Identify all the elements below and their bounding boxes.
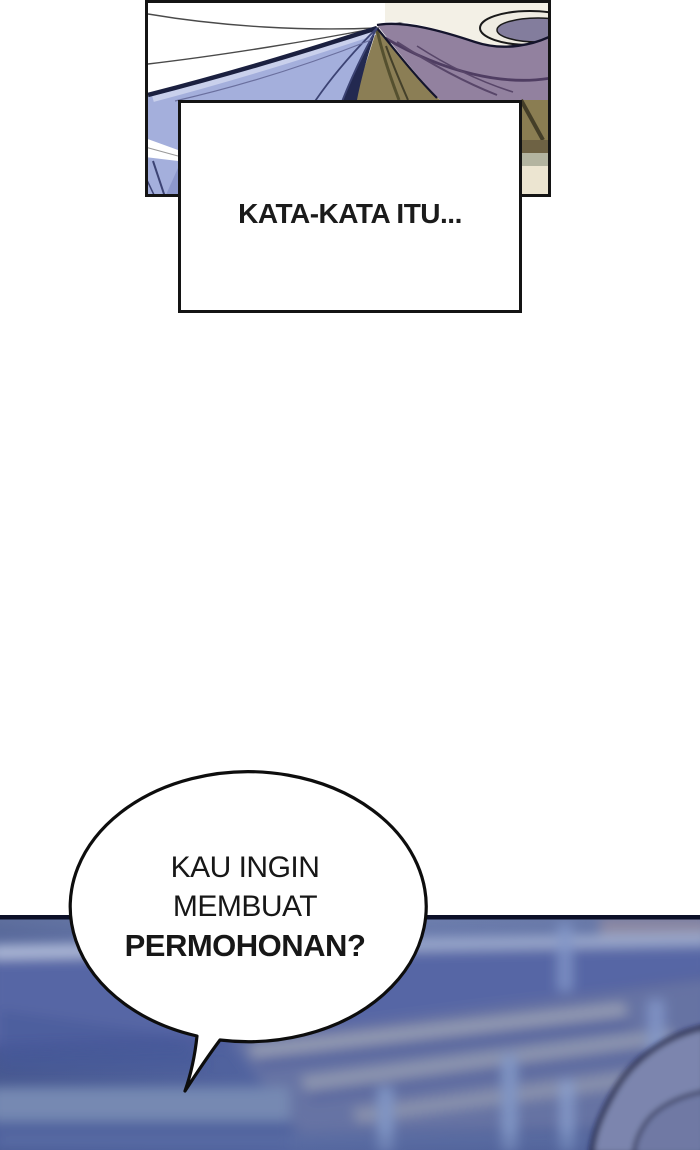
lower-left-dark [0,1121,290,1150]
speech-bubble-text: KAU INGIN MEMBUAT PERMOHONAN? [95,848,395,965]
railing-post [502,1055,517,1150]
railing-post [558,923,572,991]
bubble-line-3: PERMOHONAN? [95,926,395,965]
bubble-line-1: KAU INGIN [95,848,395,887]
narration-box: KATA-KATA ITU... [178,100,522,313]
narration-text: KATA-KATA ITU... [238,184,462,230]
bubble-line-2: MEMBUAT [95,887,395,926]
